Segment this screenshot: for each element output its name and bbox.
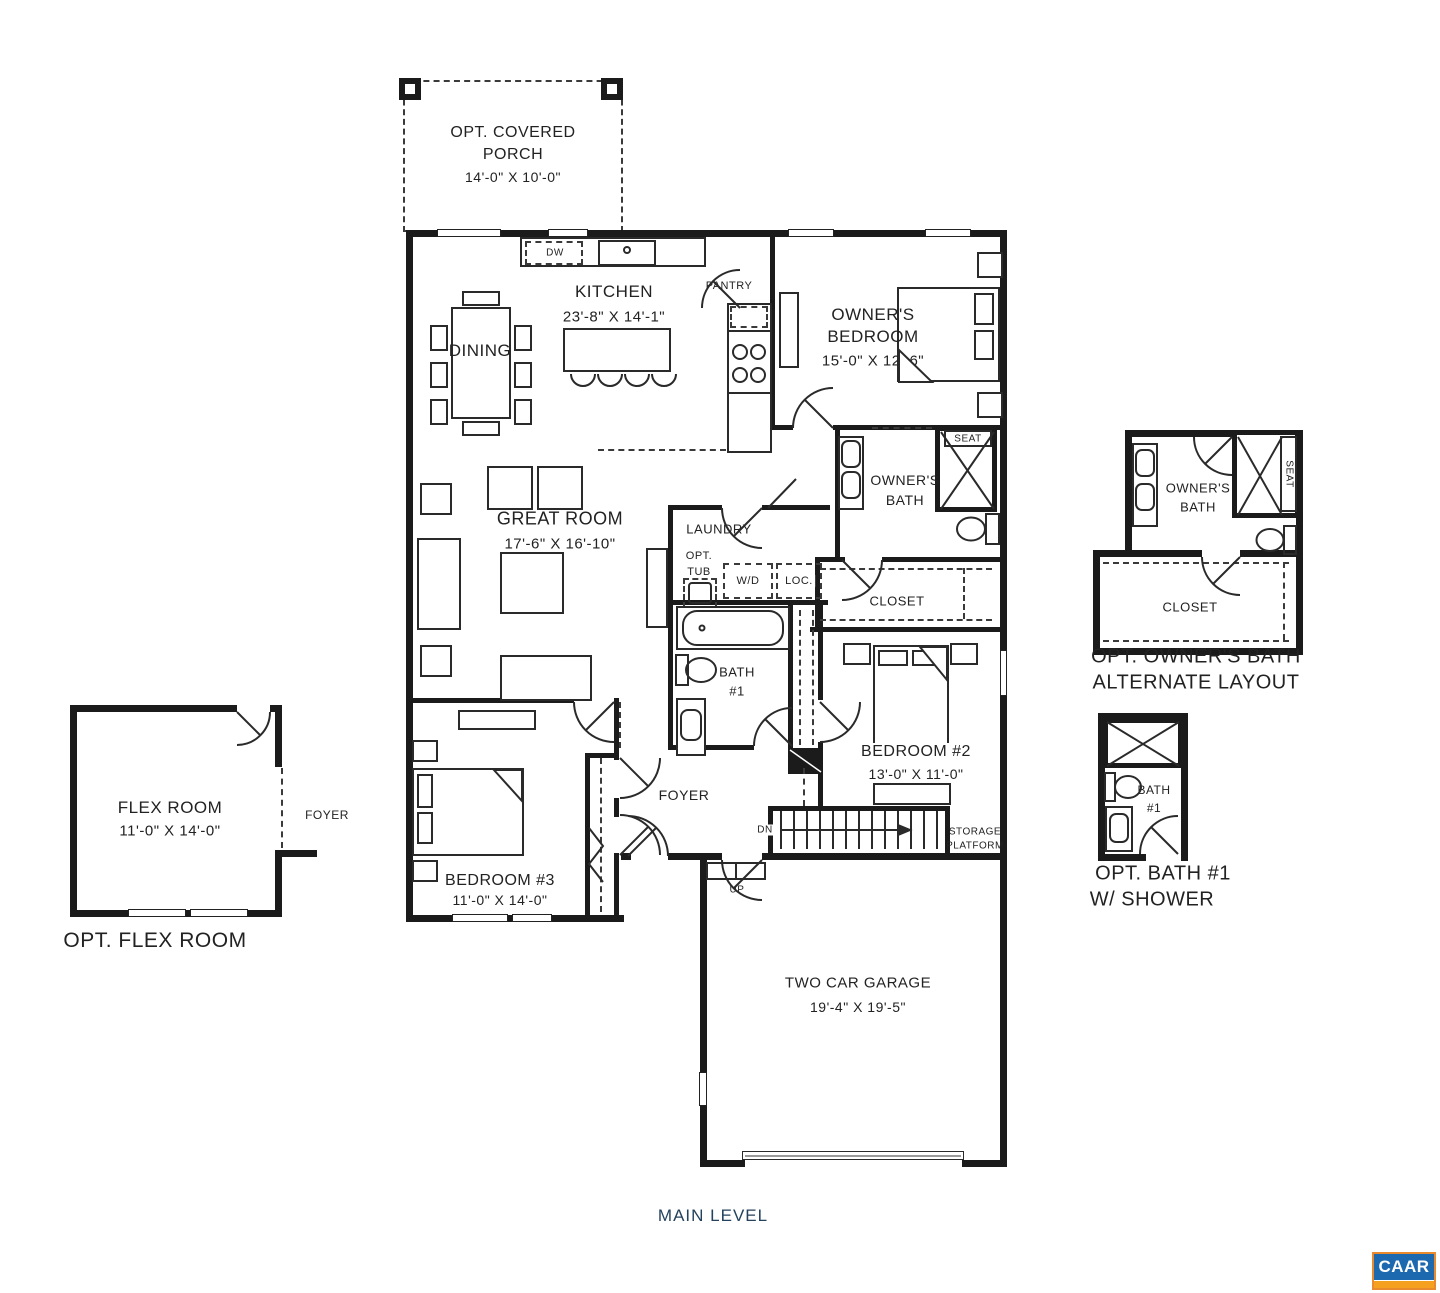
door-arc — [1202, 557, 1240, 595]
door-arc — [842, 560, 882, 600]
tub-basin — [683, 611, 783, 645]
shower-x — [1107, 722, 1179, 766]
shower-x — [1238, 437, 1282, 515]
linen-hatch-line — [790, 750, 821, 772]
door-arc — [628, 816, 668, 856]
door-arc — [820, 702, 860, 742]
tub-drain — [700, 626, 705, 631]
stool — [571, 374, 595, 386]
door-arc — [722, 508, 762, 548]
bed-fold — [920, 647, 947, 680]
burner — [751, 368, 765, 382]
burner — [751, 345, 765, 359]
sink — [681, 710, 701, 740]
bed-fold — [494, 770, 522, 801]
stool — [652, 374, 676, 386]
sink — [1136, 484, 1154, 510]
toilet-tank — [1284, 526, 1296, 554]
door-arc — [237, 712, 270, 745]
door-arc — [620, 815, 660, 855]
burner — [733, 368, 747, 382]
sink — [1136, 450, 1154, 476]
door-arc — [702, 270, 740, 308]
toilet-bowl — [957, 518, 985, 541]
door-arc — [1140, 816, 1178, 854]
burner — [733, 345, 747, 359]
bed-fold — [899, 350, 932, 382]
floor-plan: OPT. COVERED PORCH 14'-0" X 10'-0" — [0, 0, 1440, 1293]
toilet-bowl — [686, 658, 716, 682]
sink — [1110, 814, 1128, 842]
door-leaf — [768, 479, 796, 508]
toilet-tank — [986, 514, 999, 544]
caar-logo-text: CAAR — [1374, 1254, 1434, 1280]
sink — [842, 441, 860, 467]
bifold-door — [589, 828, 603, 882]
stool — [598, 374, 622, 386]
plan-annotations — [0, 0, 1440, 1293]
door-arc — [620, 758, 660, 798]
level-title: MAIN LEVEL — [658, 1206, 768, 1226]
stair-arrow-head — [898, 825, 910, 835]
door-arc — [754, 708, 792, 746]
toilet-tank — [1105, 773, 1115, 801]
faucet — [624, 247, 630, 253]
stool — [625, 374, 649, 386]
opt-tub-basin — [689, 583, 711, 603]
door-arc — [1194, 437, 1232, 475]
toilet-bowl — [1115, 776, 1141, 798]
door-arc — [722, 860, 762, 900]
sink — [842, 472, 860, 498]
door-arc — [574, 702, 614, 742]
caar-logo-bar — [1374, 1280, 1434, 1288]
toilet-bowl — [1257, 529, 1284, 551]
door-arc — [793, 388, 833, 428]
caar-logo: CAAR — [1372, 1252, 1436, 1290]
shower-x — [941, 432, 994, 509]
